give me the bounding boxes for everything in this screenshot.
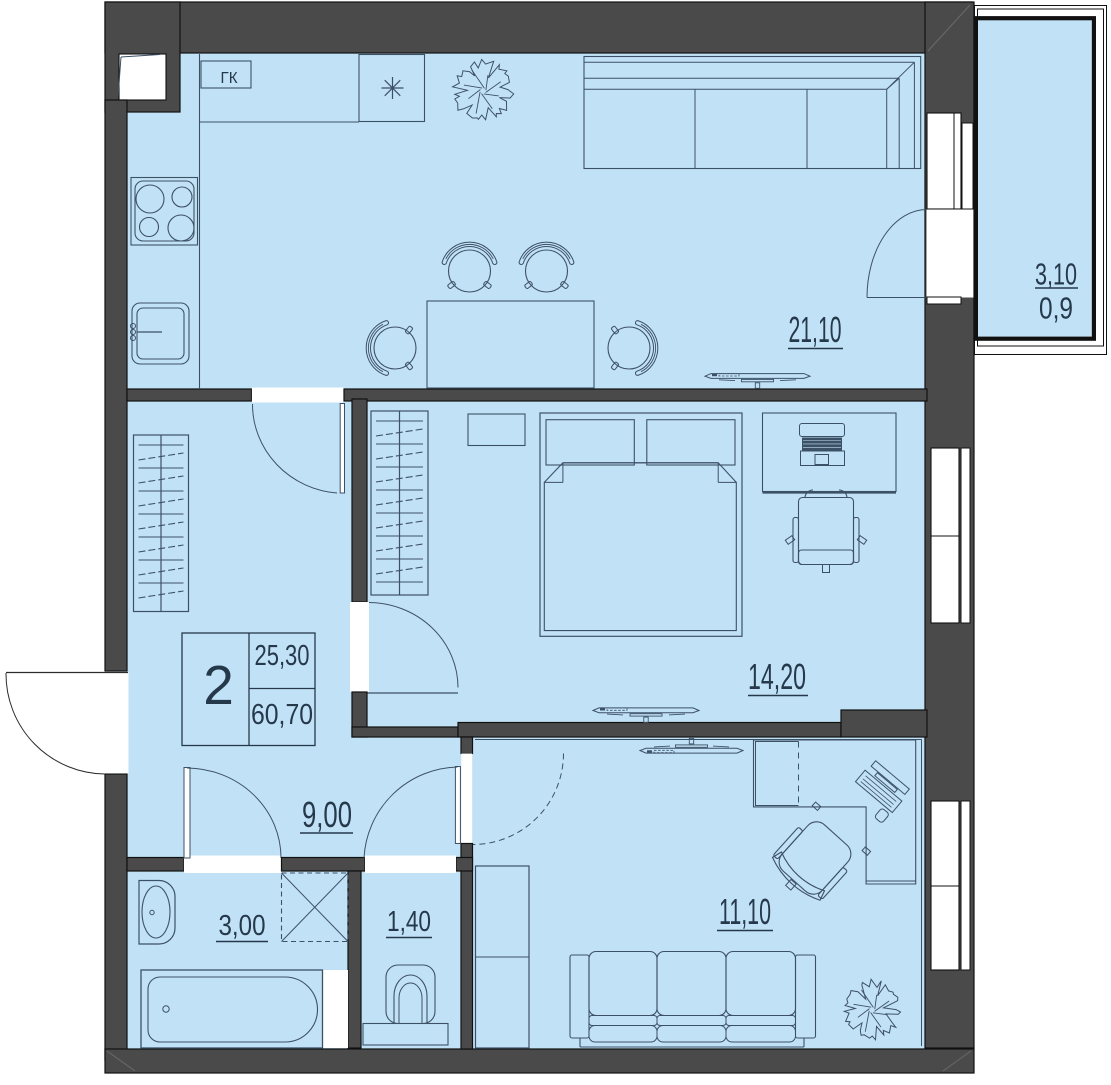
svg-text:14,20: 14,20: [748, 656, 806, 697]
svg-text:0,9: 0,9: [1039, 291, 1073, 326]
svg-text:11,10: 11,10: [719, 891, 771, 932]
svg-text:1,40: 1,40: [387, 906, 431, 938]
svg-text:3,00: 3,00: [219, 910, 266, 942]
svg-text:21,10: 21,10: [789, 309, 842, 350]
svg-text:2: 2: [203, 654, 234, 716]
svg-text:ГК: ГК: [221, 70, 239, 87]
svg-text:25,30: 25,30: [255, 640, 310, 672]
svg-text:9,00: 9,00: [302, 794, 352, 835]
svg-text:60,70: 60,70: [251, 699, 313, 731]
svg-text:3,10: 3,10: [1035, 257, 1077, 292]
